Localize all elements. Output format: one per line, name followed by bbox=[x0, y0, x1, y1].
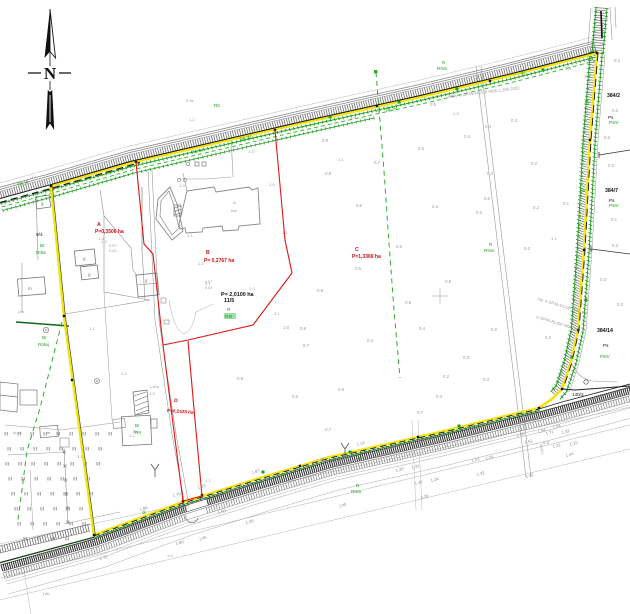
svg-text:.1.2: .1.2 bbox=[197, 261, 204, 266]
svg-text:.1.2: .1.2 bbox=[128, 433, 135, 438]
svg-text:0.8: 0.8 bbox=[325, 171, 332, 176]
svg-text:j.db.: j.db. bbox=[42, 591, 51, 596]
svg-text:0.3: 0.3 bbox=[476, 210, 483, 215]
svg-text:.1.3: .1.3 bbox=[247, 149, 254, 154]
svg-text:0.3: 0.3 bbox=[600, 277, 607, 282]
svg-text:.1.3: .1.3 bbox=[178, 183, 185, 188]
svg-text:0.8: 0.8 bbox=[322, 138, 329, 143]
svg-text:P=1,3369 ha: P=1,3369 ha bbox=[352, 254, 381, 260]
svg-text:j.kb.: j.kb. bbox=[17, 309, 25, 314]
svg-text:Br: Br bbox=[40, 243, 45, 248]
svg-text:0.1: 0.1 bbox=[580, 403, 587, 408]
svg-text:.1.1: .1.1 bbox=[218, 142, 225, 147]
svg-text:0.07: 0.07 bbox=[205, 280, 212, 284]
svg-text:0.3: 0.3 bbox=[608, 163, 615, 168]
svg-text:1.2bu: 1.2bu bbox=[149, 384, 159, 389]
svg-text:0.8: 0.8 bbox=[237, 376, 244, 381]
svg-text:.1.1: .1.1 bbox=[88, 326, 95, 331]
svg-text:.1.2: .1.2 bbox=[120, 371, 127, 376]
svg-text:0.2: 0.2 bbox=[614, 58, 621, 63]
svg-text:PsIV: PsIV bbox=[609, 120, 620, 125]
svg-text:0.2: 0.2 bbox=[617, 302, 624, 307]
svg-text:R: R bbox=[227, 307, 231, 313]
svg-text:0.43: 0.43 bbox=[109, 249, 116, 253]
svg-text:.1.0: .1.0 bbox=[452, 111, 459, 116]
svg-text:0.2: 0.2 bbox=[491, 327, 498, 332]
svg-text:Rb: Rb bbox=[214, 103, 220, 108]
svg-text:0.4: 0.4 bbox=[419, 326, 426, 331]
svg-text:Br: Br bbox=[42, 335, 47, 340]
svg-text:384/2: 384/2 bbox=[607, 93, 620, 99]
svg-text:RIIIa: RIIIa bbox=[36, 250, 46, 255]
svg-text:0.7: 0.7 bbox=[303, 343, 310, 348]
svg-text:Ps: Ps bbox=[609, 198, 615, 203]
svg-text:.3.1: .3.1 bbox=[273, 311, 280, 316]
svg-text:bne: bne bbox=[231, 209, 237, 213]
svg-text:.1.0: .1.0 bbox=[166, 553, 173, 558]
svg-text:1.2: 1.2 bbox=[189, 117, 195, 122]
svg-text:PsIV: PsIV bbox=[600, 354, 611, 359]
svg-text:0.2: 0.2 bbox=[612, 243, 619, 248]
svg-text:0.4: 0.4 bbox=[432, 204, 439, 209]
svg-text:0.2: 0.2 bbox=[531, 161, 538, 166]
svg-text:0.7: 0.7 bbox=[325, 427, 332, 432]
svg-text:RII: RII bbox=[135, 430, 141, 435]
svg-text:0.3: 0.3 bbox=[524, 246, 531, 251]
svg-text:.1.1: .1.1 bbox=[186, 233, 193, 238]
svg-text:PsIV: PsIV bbox=[609, 203, 620, 208]
svg-text:0.7: 0.7 bbox=[374, 160, 381, 165]
svg-text:W: W bbox=[585, 100, 590, 105]
svg-text:.1.2: .1.2 bbox=[204, 478, 211, 483]
svg-text:0.5: 0.5 bbox=[396, 244, 403, 249]
svg-text:N: N bbox=[44, 64, 57, 83]
svg-text:dr: dr bbox=[358, 456, 363, 461]
svg-text:0.3: 0.3 bbox=[511, 118, 518, 123]
svg-text:0.97: 0.97 bbox=[109, 244, 116, 248]
svg-text:A: A bbox=[97, 222, 101, 228]
svg-text:Br: Br bbox=[135, 423, 140, 428]
svg-text:384/7: 384/7 bbox=[605, 188, 618, 194]
svg-text:384/14: 384/14 bbox=[597, 328, 613, 334]
svg-text:0.3: 0.3 bbox=[463, 355, 470, 360]
svg-text:0.43: 0.43 bbox=[205, 286, 212, 290]
svg-text:RIVa: RIVa bbox=[437, 66, 447, 71]
svg-text:0.6: 0.6 bbox=[317, 288, 324, 293]
svg-text:0.6: 0.6 bbox=[405, 300, 412, 305]
svg-text:0.4: 0.4 bbox=[485, 124, 492, 129]
svg-text:11/5: 11/5 bbox=[224, 298, 234, 304]
svg-text:0.2: 0.2 bbox=[533, 205, 540, 210]
svg-text:0.4: 0.4 bbox=[367, 338, 374, 343]
svg-text:.1.1: .1.1 bbox=[30, 174, 37, 179]
svg-text:0.4: 0.4 bbox=[436, 394, 443, 399]
svg-text:0.6: 0.6 bbox=[356, 203, 363, 208]
svg-text:.1.0: .1.0 bbox=[248, 286, 255, 291]
svg-text:B: B bbox=[206, 250, 210, 256]
svg-text:.1.1: .1.1 bbox=[337, 157, 344, 162]
svg-text:0.3: 0.3 bbox=[612, 108, 619, 113]
svg-text:.1.0: .1.0 bbox=[268, 182, 275, 187]
svg-text:RIII: RIII bbox=[225, 314, 232, 320]
svg-text:0.2: 0.2 bbox=[545, 335, 552, 340]
svg-text:0.1: 0.1 bbox=[563, 201, 570, 206]
svg-text:C: C bbox=[355, 247, 359, 253]
svg-text:0.1: 0.1 bbox=[611, 217, 618, 222]
svg-text:P= 0,2767 ha: P= 0,2767 ha bbox=[204, 258, 234, 264]
svg-text:P=0,3506 ha: P=0,3506 ha bbox=[95, 229, 124, 235]
svg-text:RIVa: RIVa bbox=[351, 489, 361, 494]
svg-text:dr,zk.: dr,zk. bbox=[13, 430, 23, 435]
svg-text:.1.1: .1.1 bbox=[550, 236, 557, 241]
svg-text:m: m bbox=[28, 286, 32, 291]
svg-text:0.5: 0.5 bbox=[418, 146, 425, 151]
svg-text:0.8: 0.8 bbox=[585, 74, 592, 79]
svg-text:0.4: 0.4 bbox=[464, 134, 471, 139]
svg-text:0.4: 0.4 bbox=[350, 115, 357, 120]
svg-text:RIIIaj: RIIIaj bbox=[38, 342, 49, 347]
svg-text:0.6: 0.6 bbox=[484, 196, 491, 201]
svg-text:1.0: 1.0 bbox=[283, 325, 290, 330]
svg-text:9/4: 9/4 bbox=[36, 232, 43, 238]
svg-text:0.3: 0.3 bbox=[483, 377, 490, 382]
svg-text:0.2: 0.2 bbox=[443, 374, 450, 379]
svg-text:0.3: 0.3 bbox=[487, 171, 494, 176]
svg-text:0.2: 0.2 bbox=[604, 135, 611, 140]
svg-text:140/3: 140/3 bbox=[572, 392, 584, 397]
svg-text:0.6: 0.6 bbox=[292, 394, 299, 399]
svg-text:W: W bbox=[581, 188, 586, 193]
svg-text:0.5z: 0.5z bbox=[186, 98, 194, 103]
svg-text:0.8: 0.8 bbox=[300, 326, 307, 331]
svg-text:0.5: 0.5 bbox=[430, 102, 437, 107]
svg-text:0.5: 0.5 bbox=[355, 266, 362, 271]
svg-text:0.8: 0.8 bbox=[445, 279, 452, 284]
svg-text:0.6: 0.6 bbox=[338, 387, 345, 392]
svg-text:.1.0: .1.0 bbox=[148, 391, 155, 396]
svg-text:2.4: 2.4 bbox=[565, 66, 572, 71]
svg-text:Ps: Ps bbox=[608, 115, 614, 120]
svg-text:RIVa: RIVa bbox=[484, 248, 494, 253]
svg-text:m: m bbox=[233, 201, 236, 205]
svg-text:.1.0: .1.0 bbox=[97, 236, 104, 241]
svg-text:.3.1: .3.1 bbox=[76, 454, 83, 459]
svg-text:Ps: Ps bbox=[603, 343, 609, 348]
svg-text:.1.1: .1.1 bbox=[281, 230, 288, 235]
svg-text:0.7: 0.7 bbox=[417, 410, 424, 415]
